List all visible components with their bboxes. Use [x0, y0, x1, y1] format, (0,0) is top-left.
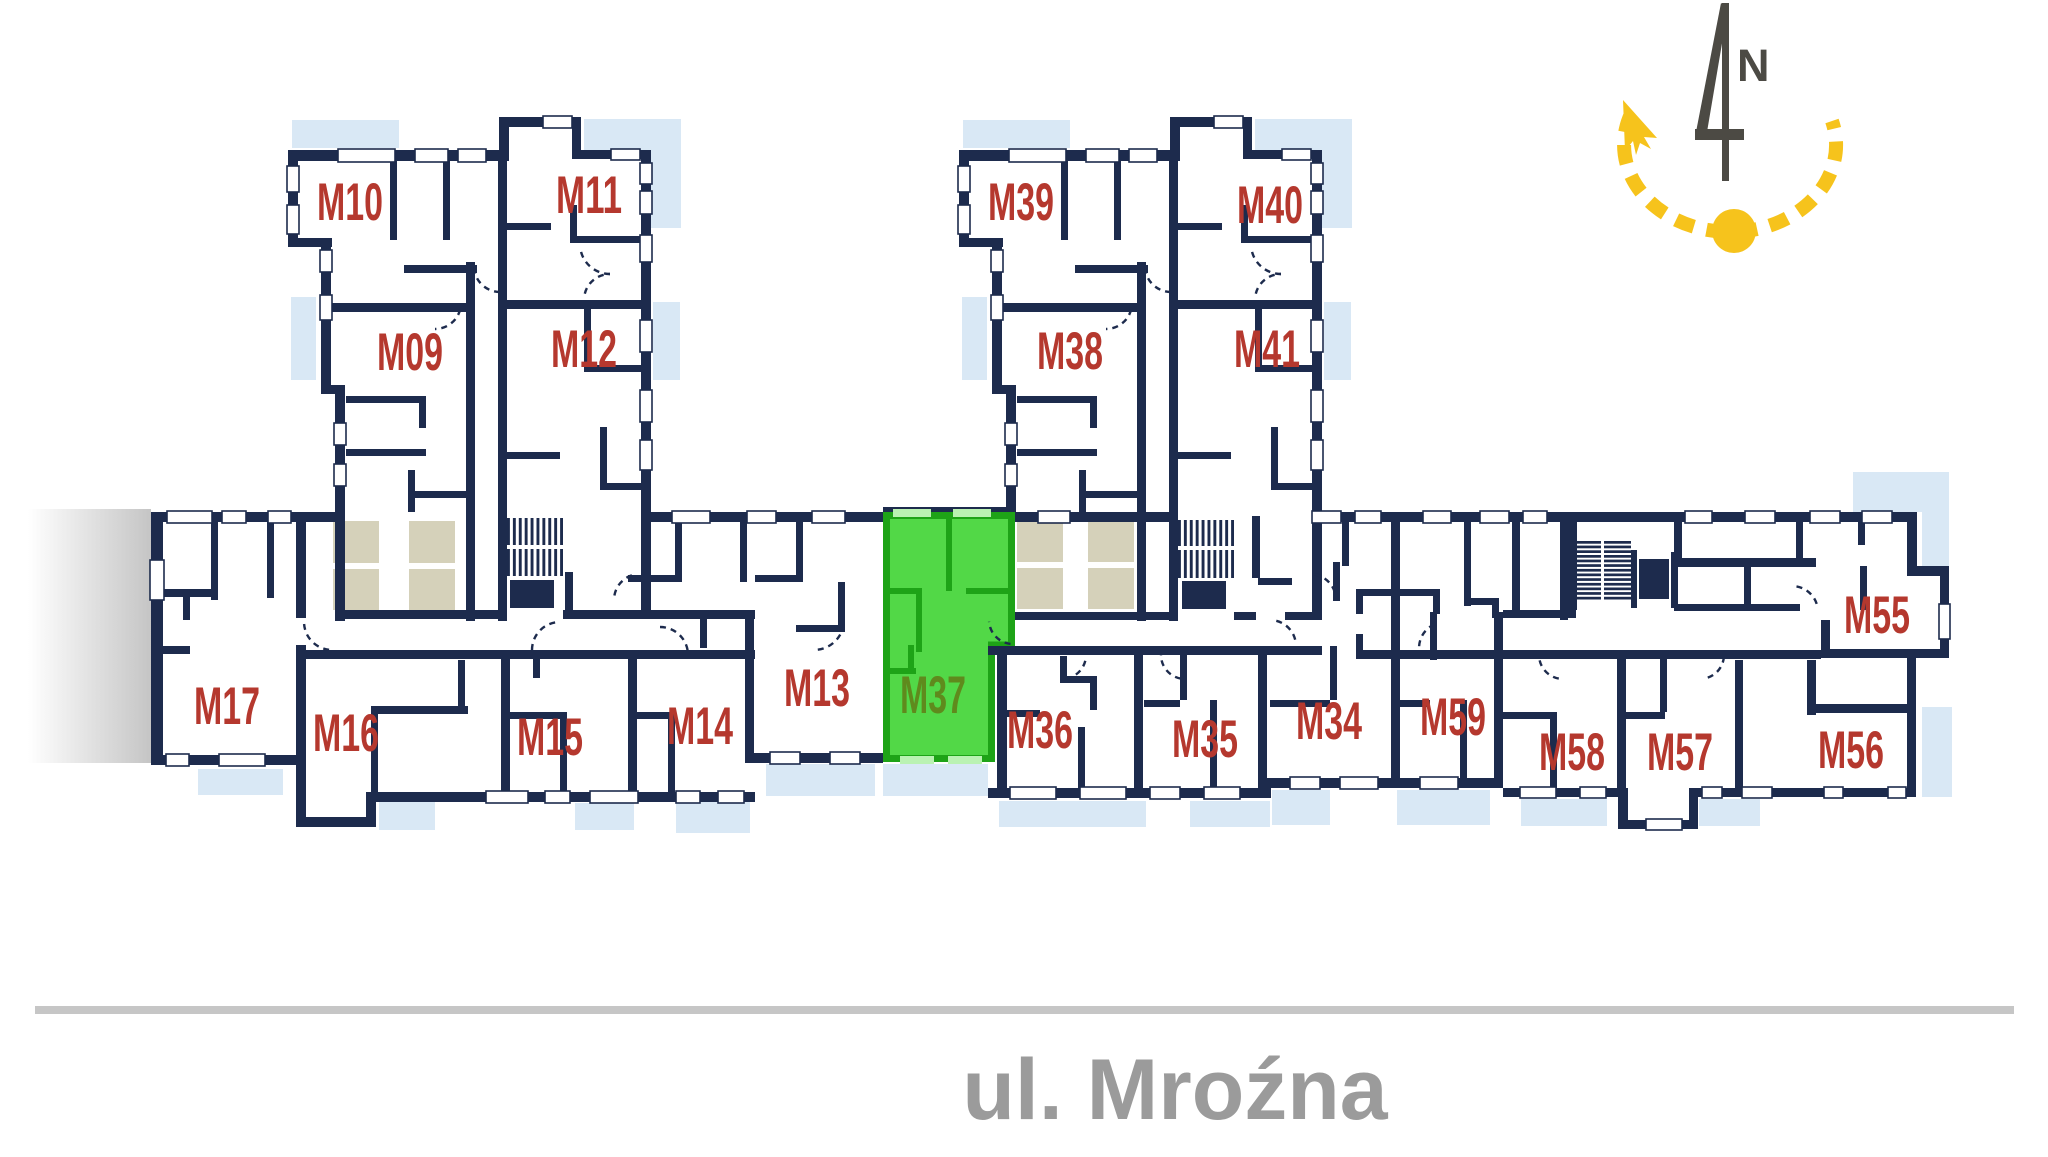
svg-text:N: N [1737, 40, 1770, 91]
svg-text:M57: M57 [1647, 723, 1713, 782]
svg-text:M14: M14 [667, 697, 733, 756]
svg-text:M36: M36 [1007, 701, 1073, 760]
svg-text:M40: M40 [1237, 176, 1303, 235]
svg-text:M15: M15 [517, 708, 583, 767]
svg-text:M37: M37 [900, 666, 966, 725]
svg-text:M39: M39 [988, 173, 1054, 232]
svg-text:M11: M11 [556, 166, 622, 225]
svg-text:M34: M34 [1296, 692, 1362, 751]
svg-text:M10: M10 [317, 173, 383, 232]
svg-text:M59: M59 [1420, 688, 1486, 747]
svg-text:M09: M09 [377, 323, 443, 382]
svg-text:M13: M13 [784, 659, 850, 718]
svg-text:M17: M17 [194, 677, 260, 736]
svg-text:M16: M16 [313, 704, 379, 763]
svg-text:M56: M56 [1818, 721, 1884, 780]
svg-text:M35: M35 [1172, 710, 1238, 769]
svg-text:ul. Mroźna: ul. Mroźna [962, 1042, 1388, 1138]
svg-text:M58: M58 [1539, 723, 1605, 782]
svg-text:M55: M55 [1844, 586, 1910, 645]
svg-text:M38: M38 [1037, 322, 1103, 381]
svg-text:M12: M12 [551, 320, 617, 379]
svg-text:M41: M41 [1234, 320, 1300, 379]
